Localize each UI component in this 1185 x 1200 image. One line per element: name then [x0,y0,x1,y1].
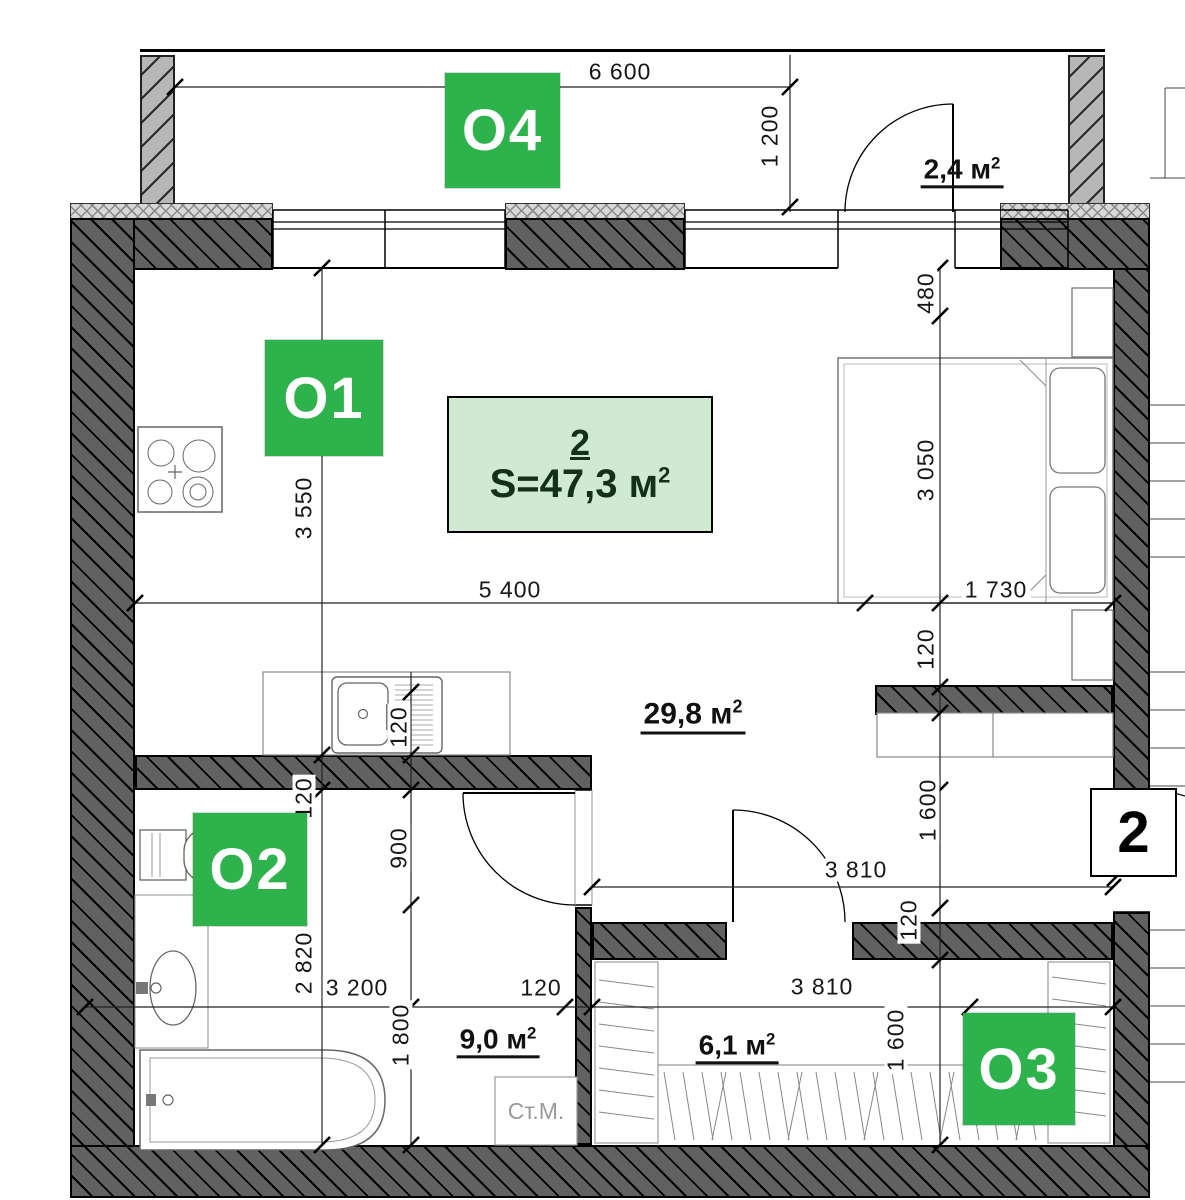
dim-wardrobe-height: 1 600 [885,1006,908,1075]
dim-wardrobe-width: 3 810 [788,976,857,999]
stove [138,427,222,512]
dim-hall-height: 1 800 [390,1001,413,1070]
dim-living-width: 5 400 [476,579,545,602]
dim-hall-wall: 120 [517,977,564,1000]
dim-bed-width: 1 730 [962,579,1031,602]
apartment-area: S=47,3 м2 [490,462,671,506]
marker-o1-kitchen[interactable]: O1 [265,340,383,456]
area-hall: 9,0 м2 [457,1025,540,1058]
marker-o4-balcony[interactable]: O4 [445,73,560,188]
apartment-number: 2 [570,423,590,463]
bathtub [140,1050,385,1150]
dim-kitchen-zone: 3 550 [293,474,316,543]
hall-door [463,790,592,905]
dim-bed-zone: 3 050 [915,436,938,505]
dim-bath-height: 2 820 [293,929,316,998]
area-living: 29,8 м2 [641,698,746,735]
floor-plan: 6 600 1 200 480 3 050 3 550 5 400 1 730 … [0,0,1185,1200]
dim-bath-door: 900 [388,824,411,871]
dim-entry-width: 3 810 [822,859,891,882]
dim-wall-bed: 120 [915,625,938,672]
apartment-info-box: 2 S=47,3 м2 [447,396,713,533]
marker-o3-wardrobe[interactable]: O3 [963,1013,1075,1125]
area-balcony: 2,4 м2 [921,155,1004,188]
stair-lines [1150,88,1185,1082]
dim-entry-zone: 1 600 [917,776,940,845]
dim-balcony-depth: 1 200 [759,102,782,171]
entry-closet [877,713,1113,757]
marker-o2-bathroom[interactable]: O2 [193,813,307,926]
bed [838,358,1113,603]
washing-machine-label: Ст.М. [495,1077,577,1145]
dim-bath-width: 3 200 [323,977,392,1000]
dim-balcony-width: 6 600 [586,61,655,84]
window-glazing [273,210,1068,268]
entrance-number-badge: 2 [1090,788,1177,877]
dim-bed-offset: 480 [915,269,938,316]
dim-wall-entry: 120 [898,896,921,943]
area-wardrobe: 6,1 м2 [696,1031,779,1064]
dim-counter-wall: 120 [388,703,411,750]
